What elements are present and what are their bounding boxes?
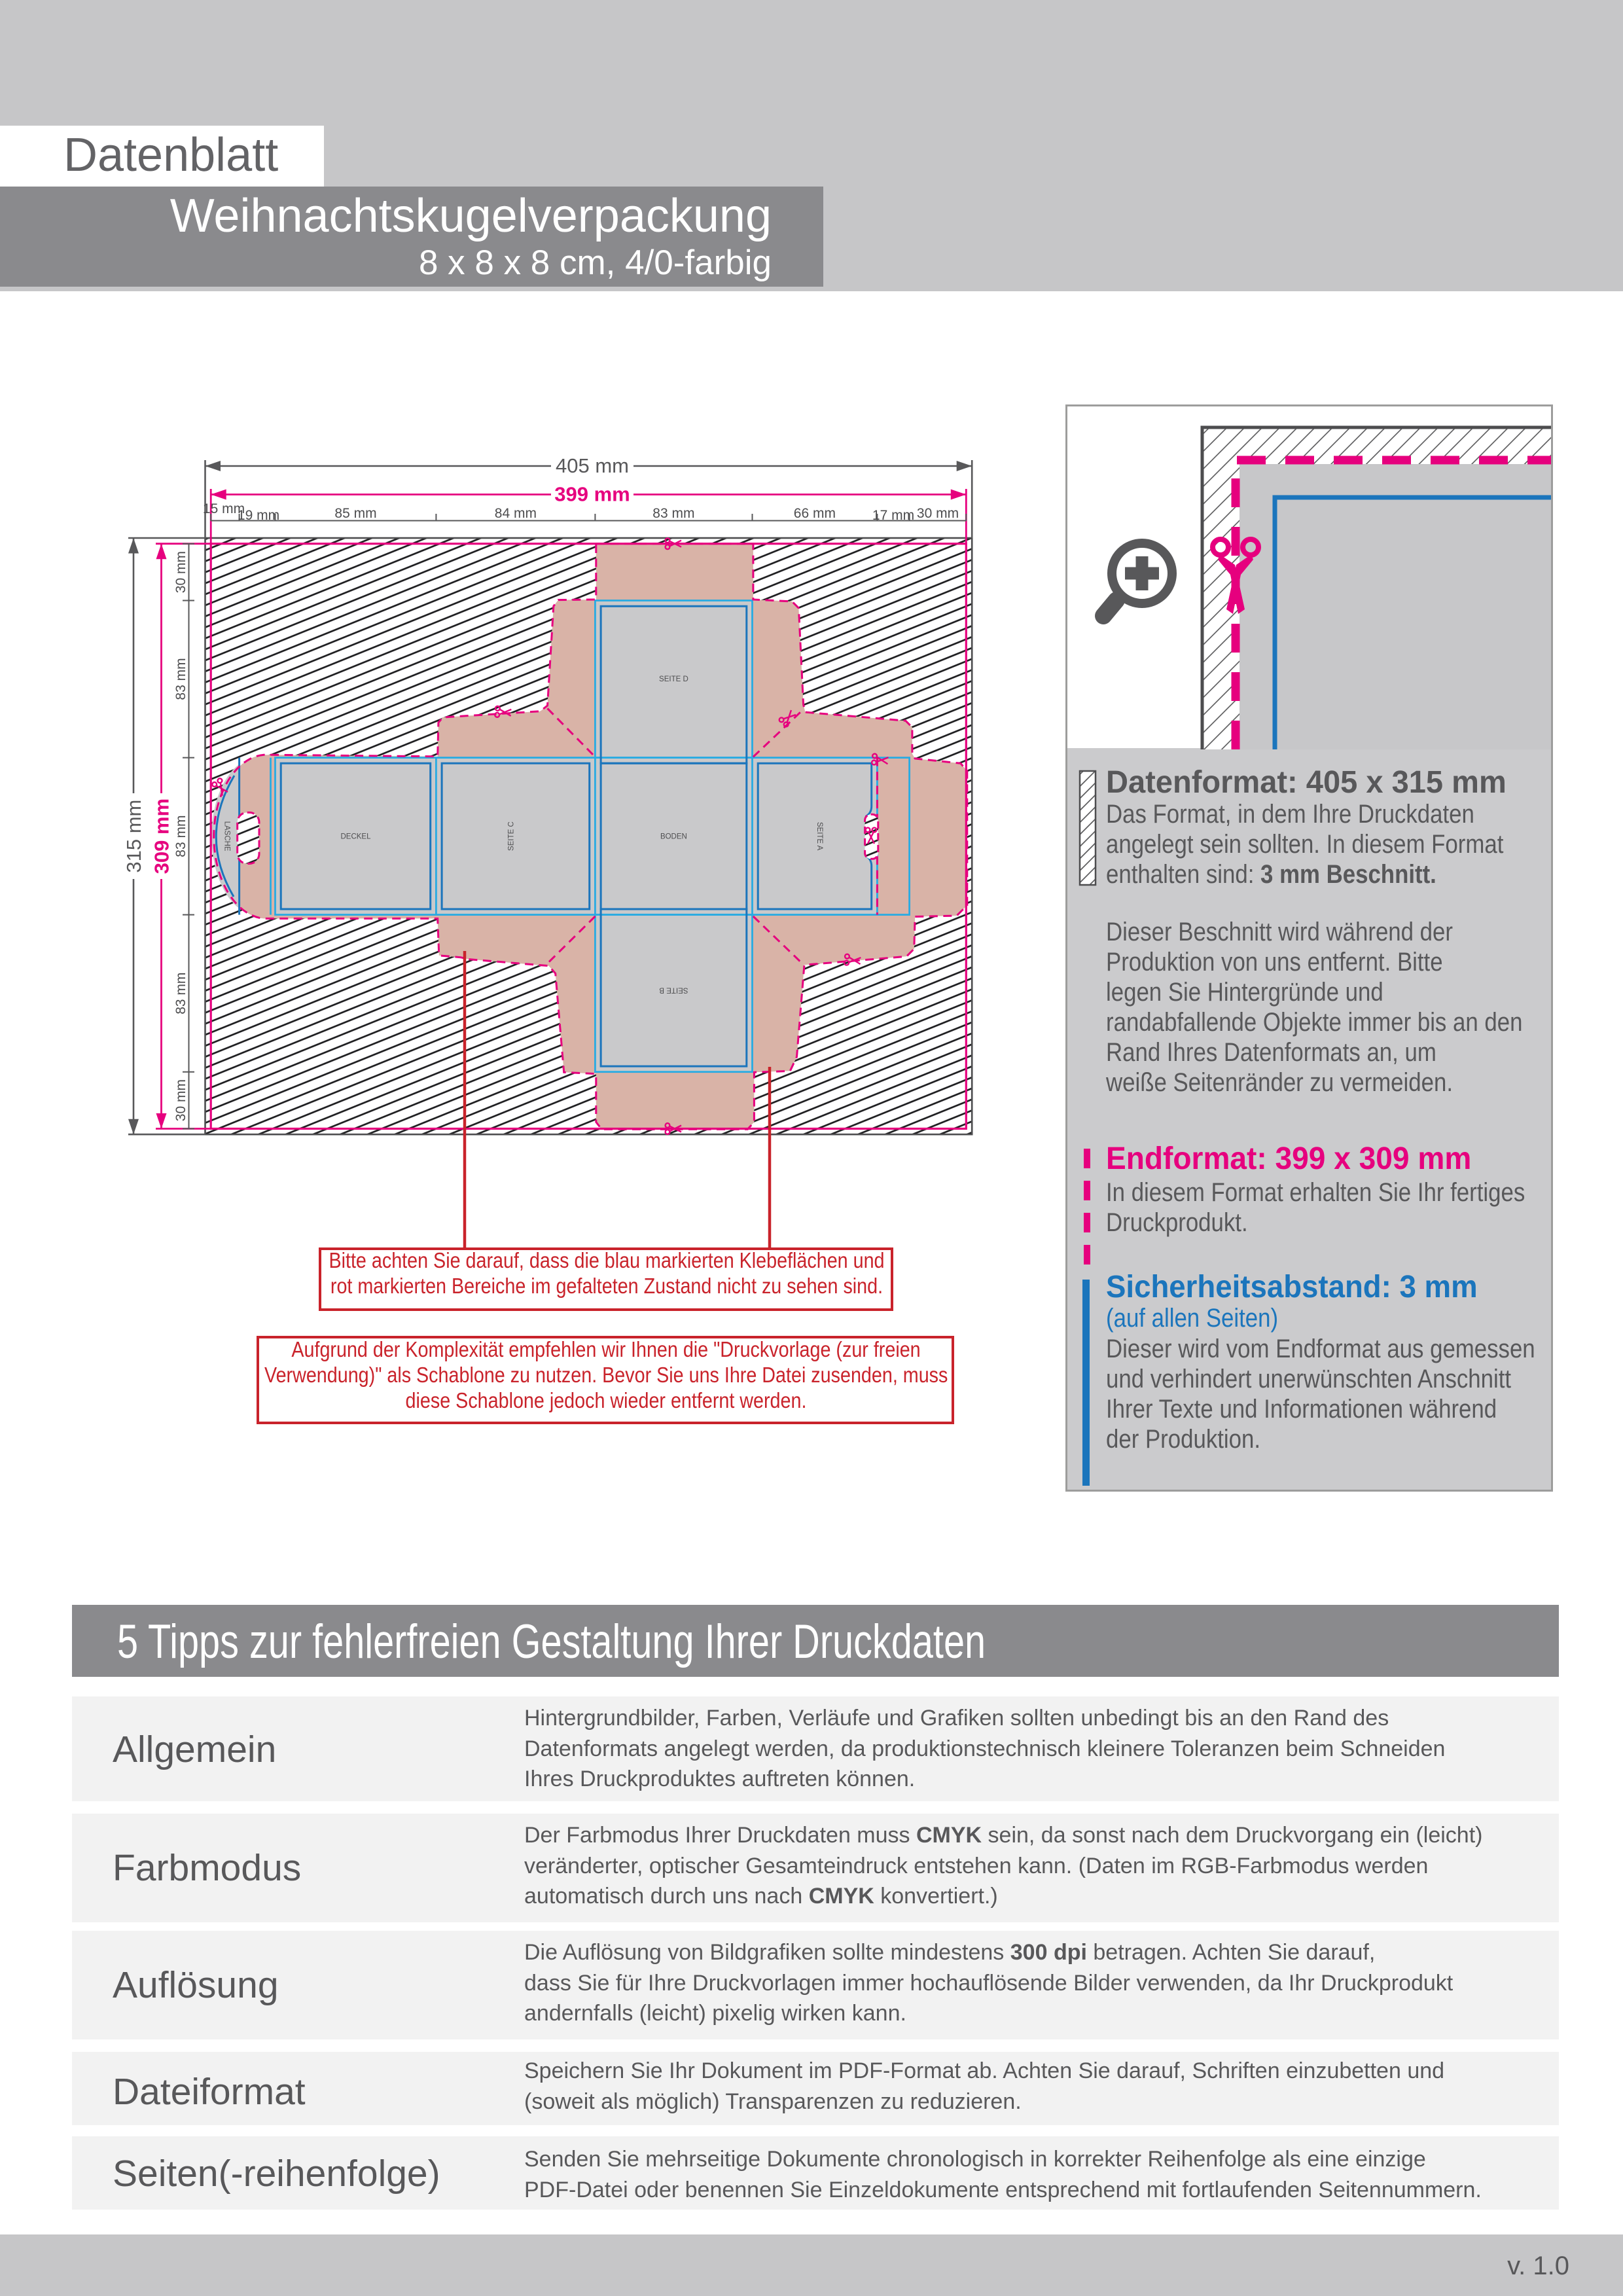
svg-text:315 mm: 315 mm (122, 800, 145, 873)
svg-text:66 mm: 66 mm (794, 506, 836, 521)
svg-text:LASCHE: LASCHE (223, 821, 231, 852)
svg-text:405 mm: 405 mm (556, 454, 629, 477)
svg-text:30 mm: 30 mm (917, 506, 959, 521)
svg-text:30 mm: 30 mm (173, 551, 188, 593)
svg-text:DECKEL: DECKEL (340, 833, 371, 841)
svg-text:SEITE A: SEITE A (815, 822, 823, 851)
svg-text:83 mm: 83 mm (173, 816, 188, 857)
svg-text:83 mm: 83 mm (173, 973, 188, 1014)
svg-text:83 mm: 83 mm (173, 658, 188, 700)
svg-text:19 mm: 19 mm (238, 508, 279, 523)
svg-text:309 mm: 309 mm (151, 798, 173, 874)
svg-text:83 mm: 83 mm (652, 506, 694, 521)
svg-text:SEITE D: SEITE D (659, 675, 688, 683)
svg-text:84 mm: 84 mm (495, 506, 537, 521)
svg-text:SEITE B: SEITE B (659, 986, 688, 994)
svg-text:30 mm: 30 mm (173, 1079, 188, 1121)
svg-text:399 mm: 399 mm (554, 483, 630, 506)
svg-text:85 mm: 85 mm (334, 506, 376, 521)
svg-text:17 mm: 17 mm (872, 508, 914, 523)
svg-text:BODEN: BODEN (660, 833, 687, 841)
svg-text:SEITE C: SEITE C (507, 821, 515, 851)
